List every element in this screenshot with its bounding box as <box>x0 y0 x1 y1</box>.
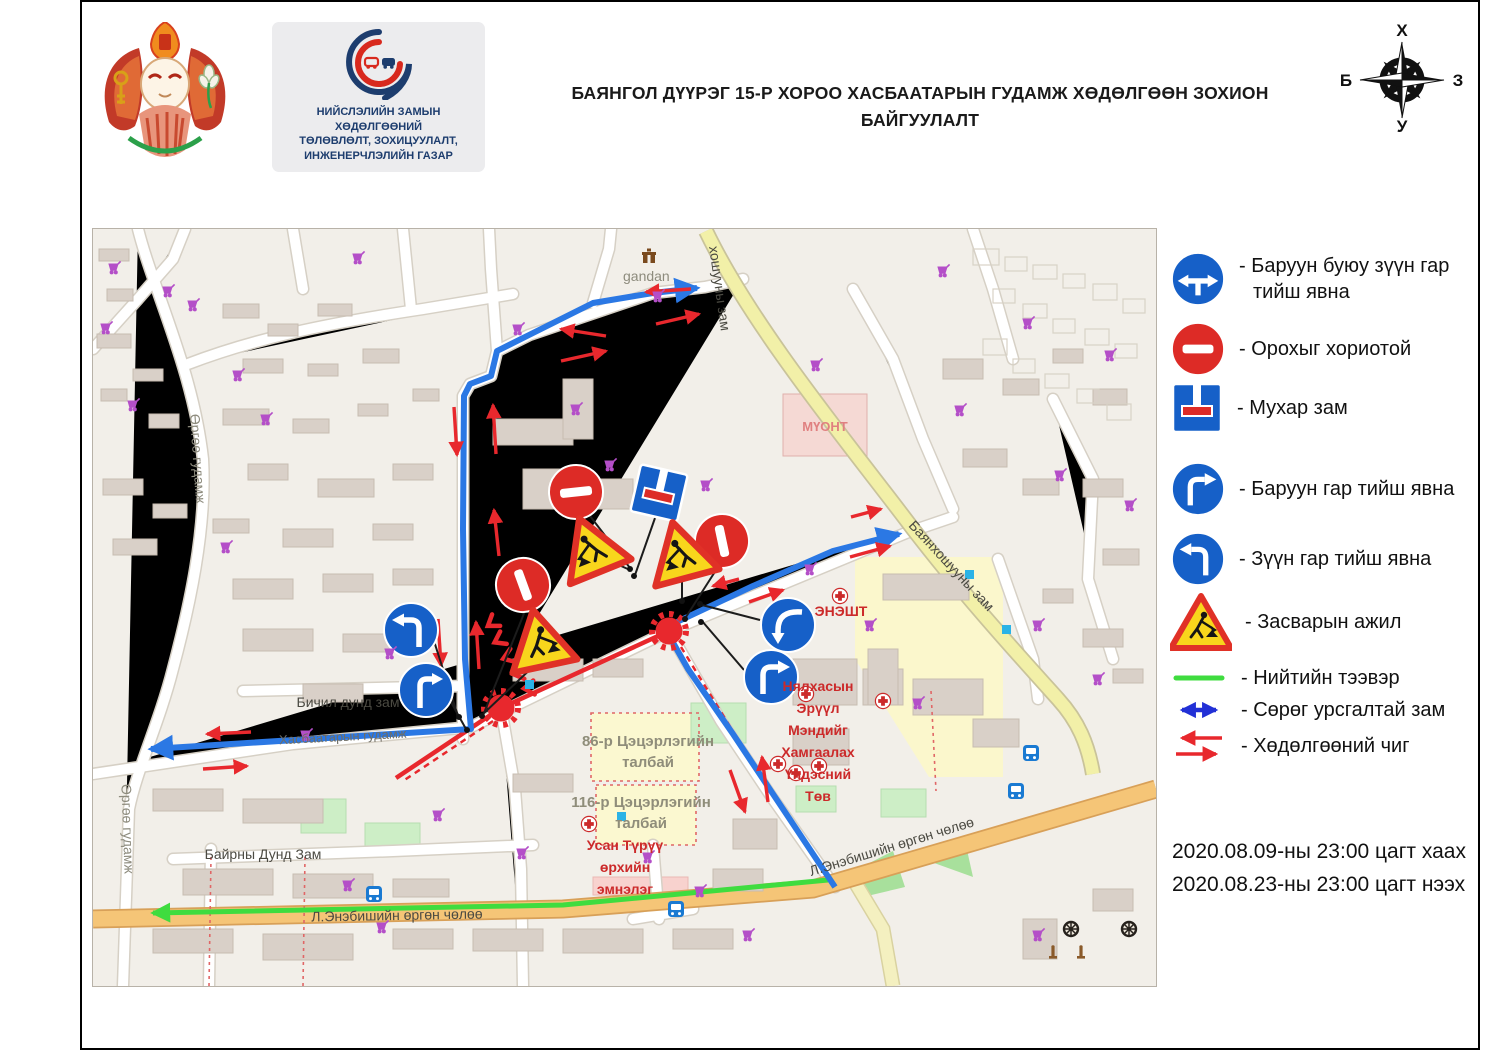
label-enebish-avenue: Л.Энэбишийн өргөн чөлөө <box>311 906 483 925</box>
legend-item-public-transport: - Нийтийн тээвэр <box>1170 665 1400 691</box>
svg-text:талбай: талбай <box>615 815 667 832</box>
traffic-agency-logo-box: НИЙСЛЭЛИЙН ЗАМЫН ХӨДӨЛГӨӨНИЙ ТӨЛӨВЛӨЛТ, … <box>272 22 485 172</box>
svg-text:Нялхасын: Нялхасын <box>783 678 854 694</box>
compass-south-label: У <box>1397 117 1408 136</box>
reopen-date: 2020.08.23-ны 23:00 цагт нээх <box>1172 868 1466 901</box>
traffic-agency-logo-icon <box>341 28 417 100</box>
legend-item-turn-left: - Зүүн гар тийш явна <box>1170 531 1431 587</box>
turn-right-sign <box>744 650 798 704</box>
ulaanbaatar-emblem <box>95 22 235 168</box>
legend-item-dead-end: - Мухар зам <box>1170 381 1348 435</box>
public-transport-line-icon <box>1170 671 1228 685</box>
dharma-wheel-icon <box>1064 922 1078 936</box>
no-entry-sign-icon <box>1170 321 1226 377</box>
compass-west-label: Б <box>1340 71 1352 90</box>
svg-text:Мэндийг: Мэндийг <box>788 722 848 738</box>
legend-item-roadwork: - Засварын ажил <box>1170 593 1401 651</box>
svg-text:өрхийн: өрхийн <box>600 859 650 875</box>
turn-right-sign-icon <box>1170 461 1226 517</box>
closure-schedule: 2020.08.09-ны 23:00 цагт хаах 2020.08.23… <box>1172 835 1466 901</box>
legend-item-turn-left-or-right: - Баруун буюу зүүн гартийш явна <box>1170 251 1449 307</box>
label-bairny-dund-zam: Байрны Дунд Зам <box>205 846 322 862</box>
svg-text:Эрүүл: Эрүүл <box>797 700 840 716</box>
turn-left-or-right-sign-icon <box>1170 251 1226 307</box>
direction-arrows-icon <box>1170 729 1228 763</box>
legend-item-contraflow: - Сөрөг урсгалтай зам <box>1170 697 1445 723</box>
map-title-line2: БАЙГУУЛАЛТ <box>520 107 1320 134</box>
legend-item-no-entry: - Орохыг хориотой <box>1170 321 1411 377</box>
label-gandan: gandan <box>623 268 670 284</box>
traffic-map: gandan хошууны зам МҮОНТ Баянхошууны зам… <box>92 228 1157 987</box>
dead-end-sign-icon <box>1170 381 1224 435</box>
bus-stop-icon <box>366 886 382 902</box>
hospital-icon <box>832 588 847 603</box>
dead-end-sign <box>630 464 688 522</box>
svg-text:Төв: Төв <box>805 788 831 804</box>
turn-left-sign-icon <box>1170 531 1226 587</box>
compass-east-label: З <box>1453 71 1464 90</box>
contraflow-arrow-icon <box>1170 701 1228 719</box>
label-eneesht: ЭНЭШТ <box>815 603 868 619</box>
label-bichil-dund-zam: Бичил дунд зам <box>297 694 400 710</box>
map-title-line1: БАЯНГОЛ ДҮҮРЭГ 15-Р ХОРОО ХАСБААТАРЫН ГУ… <box>520 80 1320 107</box>
svg-text:эмнэлэг: эмнэлэг <box>597 881 653 897</box>
legend-item-turn-right: - Баруун гар тийш явна <box>1170 461 1454 517</box>
org-name-line2: ТӨЛӨВЛӨЛТ, ЗОХИЦУУЛАЛТ, <box>272 134 485 149</box>
org-name-line1: НИЙСЛЭЛИЙН ЗАМЫН ХӨДӨЛГӨӨНИЙ <box>272 105 485 134</box>
turn-right-ahead-sign <box>399 663 453 717</box>
svg-text:талбай: талбай <box>622 754 674 771</box>
compass-north-label: Х <box>1396 21 1408 40</box>
svg-text:Хамгаалах: Хамгаалах <box>781 744 855 760</box>
legend: - Баруун буюу зүүн гартийш явна - Орохыг… <box>1170 245 1476 1025</box>
compass-rose: Х З У Б <box>1338 20 1466 138</box>
label-muont: МҮОНТ <box>802 419 848 434</box>
map-title: БАЯНГОЛ ДҮҮРЭГ 15-Р ХОРОО ХАСБААТАРЫН ГУ… <box>520 80 1320 134</box>
closure-date: 2020.08.09-ны 23:00 цагт хаах <box>1172 835 1466 868</box>
svg-text:86-р Цэцэрлэгийн: 86-р Цэцэрлэгийн <box>582 733 714 750</box>
org-name-line3: ИНЖЕНЕРЧЛЭЛИЙН ГАЗАР <box>272 149 485 164</box>
svg-text:Усан Түрүү: Усан Түрүү <box>587 837 664 853</box>
temple-icon <box>642 249 656 264</box>
svg-text:Үндэсний: Үндэсний <box>785 766 851 782</box>
svg-text:116-р Цэцэрлэгийн: 116-р Цэцэрлэгийн <box>571 794 711 811</box>
roadwork-sign-icon <box>1170 593 1232 651</box>
label-urgu-gudamj-bottom: Өргөө гудамж <box>118 784 137 875</box>
poster-page: НИЙСЛЭЛИЙН ЗАМЫН ХӨДӨЛГӨӨНИЙ ТӨЛӨВЛӨЛТ, … <box>0 0 1500 1060</box>
turn-left-curve-sign <box>761 598 815 652</box>
legend-item-direction: - Хөдөлгөөний чиг <box>1170 729 1410 763</box>
